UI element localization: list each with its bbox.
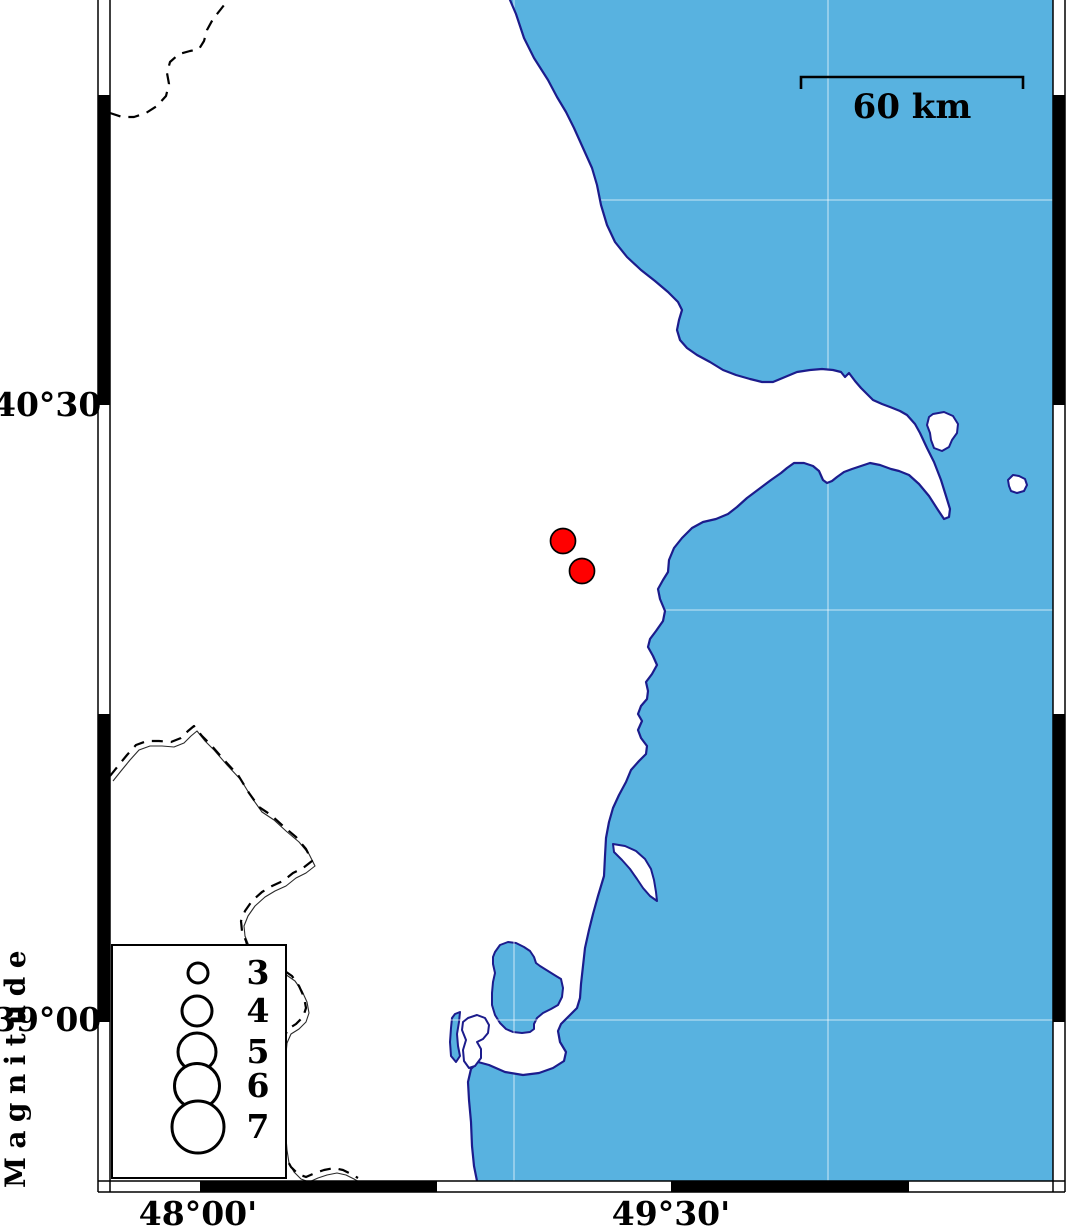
epicenters [551, 529, 595, 584]
legend-value-label: 4 [236, 990, 280, 1032]
south-island [462, 1015, 489, 1068]
legend-circle-m7 [172, 1101, 224, 1153]
lon-tick-label: 49°30' [586, 1193, 756, 1229]
epicenter-dot [551, 529, 576, 554]
border-dashed-north [110, 0, 228, 117]
seismicity-map: 40°30' 39°00' 48°00' 49°30' 60 km Magnit… [0, 0, 1066, 1229]
legend-value-label: 3 [236, 952, 280, 994]
legend-circle-m4 [182, 996, 212, 1026]
legend-title: Magnitude [0, 915, 38, 1215]
map-canvas [0, 0, 1066, 1229]
epicenter-dot [570, 559, 595, 584]
small-island-east [1008, 475, 1027, 493]
legend-value-label: 6 [236, 1065, 280, 1107]
lat-tick-label: 40°30' [0, 384, 88, 426]
legend-circle-m3 [188, 963, 208, 983]
legend-value-label: 7 [236, 1106, 280, 1148]
scale-bar-label: 60 km [827, 86, 997, 128]
lon-tick-label: 48°00' [113, 1193, 283, 1229]
